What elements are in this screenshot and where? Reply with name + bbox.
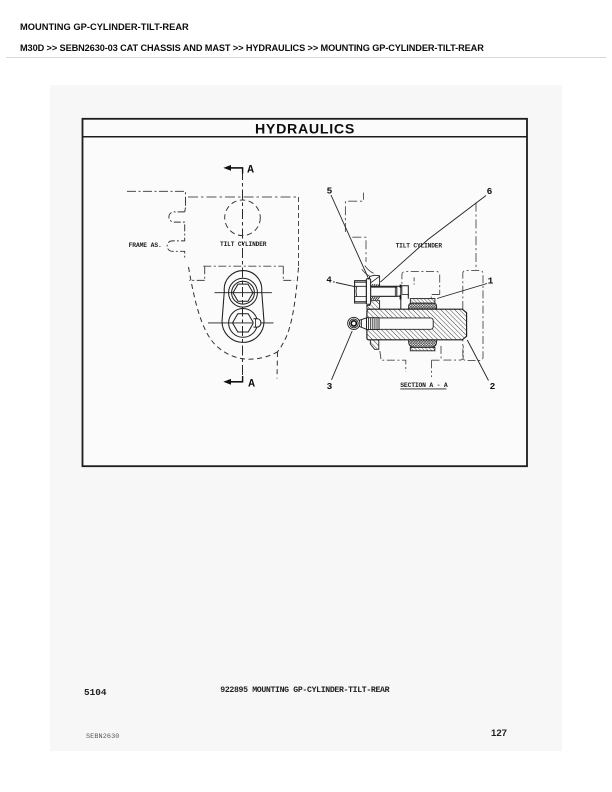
- svg-text:A: A: [248, 379, 255, 391]
- svg-text:TILT CYLINDER: TILT CYLINDER: [220, 241, 267, 248]
- svg-text:FRAME AS.: FRAME AS.: [129, 242, 162, 249]
- svg-text:A: A: [247, 164, 254, 176]
- svg-text:6: 6: [487, 186, 493, 197]
- svg-text:TILT CYLINDER: TILT CYLINDER: [396, 243, 443, 250]
- svg-text:1: 1: [488, 275, 494, 286]
- svg-text:HYDRAULICS: HYDRAULICS: [255, 122, 355, 138]
- svg-text:2: 2: [490, 381, 496, 392]
- svg-text:SECTION A - A: SECTION A - A: [400, 382, 448, 389]
- svg-text:4: 4: [326, 276, 332, 286]
- svg-text:5: 5: [327, 185, 333, 196]
- svg-text:3: 3: [327, 381, 333, 392]
